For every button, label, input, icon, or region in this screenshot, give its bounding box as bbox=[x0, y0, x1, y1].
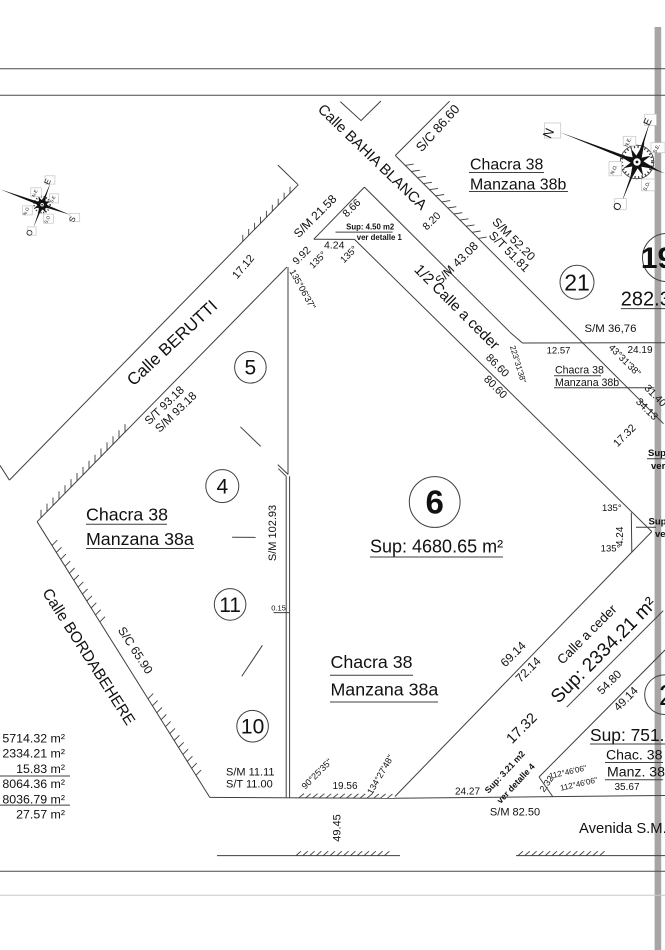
svg-text:Sup: 3: Sup: 3 bbox=[649, 517, 665, 528]
svg-text:Manzana 38b: Manzana 38b bbox=[470, 177, 566, 194]
svg-text:Manzana 38a: Manzana 38a bbox=[331, 680, 439, 700]
svg-text:ver d: ver d bbox=[655, 529, 665, 540]
svg-text:10: 10 bbox=[241, 716, 264, 739]
svg-text:Chacra 38: Chacra 38 bbox=[470, 157, 543, 174]
svg-text:Chacra 38: Chacra 38 bbox=[331, 652, 413, 672]
svg-text:4.24: 4.24 bbox=[324, 240, 345, 252]
svg-text:135°: 135° bbox=[601, 544, 621, 555]
svg-text:15.83 m²: 15.83 m² bbox=[16, 762, 65, 776]
svg-text:Manz. 38: Manz. 38 bbox=[607, 764, 665, 780]
svg-text:S/M 102.93: S/M 102.93 bbox=[267, 505, 279, 561]
svg-text:20: 20 bbox=[659, 680, 665, 712]
svg-text:Manzana 38a: Manzana 38a bbox=[86, 529, 194, 549]
svg-text:35.67: 35.67 bbox=[614, 782, 639, 793]
svg-text:24.19: 24.19 bbox=[627, 345, 652, 356]
svg-text:8064.36 m²: 8064.36 m² bbox=[2, 777, 65, 791]
svg-text:5: 5 bbox=[245, 357, 257, 380]
svg-text:135°: 135° bbox=[602, 503, 622, 514]
svg-text:27.57 m²: 27.57 m² bbox=[16, 808, 65, 822]
svg-text:S/M 82.50: S/M 82.50 bbox=[490, 807, 540, 819]
svg-text:Chac. 38: Chac. 38 bbox=[606, 747, 663, 763]
svg-text:21: 21 bbox=[564, 269, 590, 295]
svg-text:ver det: ver det bbox=[651, 461, 665, 472]
svg-text:6: 6 bbox=[426, 484, 444, 521]
svg-text:19.56: 19.56 bbox=[332, 781, 357, 792]
svg-text:282.31: 282.31 bbox=[621, 289, 665, 311]
svg-text:Avenida S.M.: Avenida S.M. bbox=[579, 821, 665, 837]
svg-text:Manzana 38b: Manzana 38b bbox=[555, 377, 619, 389]
svg-text:0.15: 0.15 bbox=[271, 604, 286, 613]
svg-text:19: 19 bbox=[641, 242, 665, 275]
svg-text:Sup: 4680.65 m²: Sup: 4680.65 m² bbox=[370, 537, 503, 557]
svg-text:Chacra 38: Chacra 38 bbox=[555, 365, 604, 377]
svg-text:S/T 11.00: S/T 11.00 bbox=[226, 779, 273, 791]
svg-text:5714.32 m²: 5714.32 m² bbox=[2, 732, 65, 746]
svg-text:49.45: 49.45 bbox=[332, 814, 344, 842]
svg-text:11: 11 bbox=[219, 594, 241, 617]
svg-text:Sup: 4.50 m2: Sup: 4.50 m2 bbox=[346, 222, 395, 231]
svg-text:2334.21 m²: 2334.21 m² bbox=[2, 747, 65, 761]
svg-text:8036.79 m²: 8036.79 m² bbox=[2, 792, 65, 806]
svg-text:Chacra 38: Chacra 38 bbox=[86, 505, 168, 525]
svg-text:ver detalle 1: ver detalle 1 bbox=[357, 233, 403, 242]
svg-text:12.57: 12.57 bbox=[547, 346, 571, 357]
svg-text:S/M 36,76: S/M 36,76 bbox=[585, 323, 637, 335]
svg-text:Sup: 751.7: Sup: 751.7 bbox=[590, 725, 665, 745]
svg-text:24.27: 24.27 bbox=[455, 787, 480, 798]
svg-text:S/M 11.11: S/M 11.11 bbox=[226, 767, 275, 779]
svg-text:Sup: 5: Sup: 5 bbox=[648, 448, 665, 459]
svg-text:4: 4 bbox=[216, 476, 228, 499]
